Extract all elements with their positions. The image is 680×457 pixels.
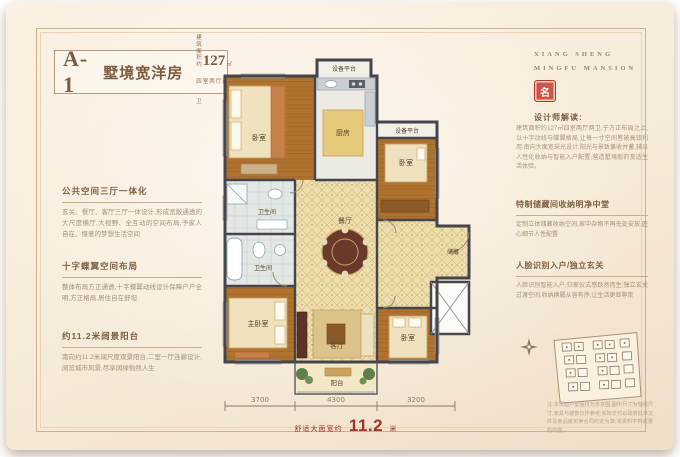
brand-line-1: XIANG SHENG — [534, 48, 636, 62]
feature-body: 南向约11.2米阔尺度观景阳台,二室一厅连廊设计,阅览城市风景,尽享阔绰怡然人生 — [62, 352, 202, 374]
feature-block-storage: 特制储藏间收纳明净中堂 定制立体储藏收纳空间,家中杂物不再无处安放,匠心细节人性… — [516, 199, 648, 240]
floorplan-card: A-1 墅境宽洋房 建筑面积约 127 ㎡ 四室两厅两卫 公共空间三厅一体化 玄… — [6, 2, 674, 450]
feature-heading: 特制储藏间收纳明净中堂 — [516, 199, 648, 216]
room-label-master: 主卧室 — [248, 319, 269, 328]
room-label-equipment-top: 设备平台 — [332, 65, 356, 73]
feature-block-cross-layout: 十字蝶翼空间布局 整体布局方正通透,十字蝶翼动线设计保障户户全明,方正格局,居住… — [62, 260, 202, 304]
unit-name: 墅境宽洋房 — [96, 62, 190, 83]
room-label-bath-1: 卫生间 — [258, 208, 276, 216]
room-label-storage: 储藏 — [447, 248, 459, 256]
room-label-equipment-right: 设备平台 — [395, 127, 419, 135]
width-caption-value: 11.2 — [347, 416, 385, 435]
feature-heading: 人脸识别入户/独立玄关 — [516, 260, 648, 277]
designer-notes-heading: 设计师解读: — [534, 112, 583, 123]
brand-seal-icon: 名 — [534, 80, 556, 102]
brand-line-2: MINGFU MANSION — [534, 62, 636, 76]
feature-block-balcony: 约11.2米阔景阳台 南向约11.2米阔尺度观景阳台,二室一厅连廊设计,阅览城市… — [62, 330, 202, 374]
room-label-bedroom-bottomright: 卧室 — [401, 333, 415, 342]
floor-plan: 设备平台 卧室 厨房 设备平台 卧室 卫生间 卫生间 餐厅 客厅 主卧室 卧室 … — [217, 30, 475, 414]
feature-block-entry: 人脸识别入户/独立玄关 人脸识别智能入户,归家仪式感跃然而生;独立玄关过渡空间,… — [516, 260, 648, 301]
designer-notes-body: 建筑面积约127㎡四室两厅两卫,于方正布局之上,以十字动线与蝶翼格局,让每一寸空… — [516, 125, 648, 173]
feature-heading: 公共空间三厅一体化 — [62, 185, 202, 203]
feature-body: 玄关、餐厅、客厅三厅一体设计,形成宽敞通透的大尺度横厅,大视野、全互动的空间布局… — [62, 207, 202, 240]
feature-block-public-space: 公共空间三厅一体化 玄关、餐厅、客厅三厅一体设计,形成宽敞通透的大尺度横厅,大视… — [62, 185, 202, 240]
feature-body: 人脸识别智能入户,归家仪式感跃然而生;独立玄关过渡空间,收纳换履从容有序,让生活… — [516, 281, 648, 301]
bedroom-right-furniture — [381, 144, 429, 212]
dimension-value-left: 3700 — [251, 396, 269, 404]
floor-plan-drawing: 设备平台 卧室 厨房 设备平台 卧室 卫生间 卫生间 餐厅 客厅 主卧室 卧室 … — [217, 30, 475, 414]
width-caption-prefix: 舒适大面宽约 — [294, 426, 342, 433]
room-label-kitchen: 厨房 — [336, 128, 350, 137]
feature-heading: 十字蝶翼空间布局 — [62, 260, 202, 278]
room-label-bedroom-right: 卧室 — [399, 158, 413, 167]
feature-heading: 约11.2米阔景阳台 — [62, 330, 202, 348]
room-label-dining: 餐厅 — [338, 216, 352, 225]
room-hallway — [377, 220, 437, 308]
disclaimer-text: 注:本页面户型图仅为示意图,图中尺寸为轴线尺寸,家具与装饰仅作参考;实际交付以政… — [547, 401, 653, 435]
feature-body: 定制立体储藏收纳空间,家中杂物不再无处安放,匠心细节人性配置 — [516, 220, 648, 240]
room-label-living: 客厅 — [330, 341, 344, 350]
brand-wordmark: XIANG SHENG MINGFU MANSION — [534, 48, 636, 75]
dimension-value-right: 3200 — [407, 396, 425, 404]
feature-body: 整体布局方正通透,十字蝶翼动线设计保障户户全明,方正格局,居住自在舒坦 — [62, 282, 202, 304]
room-label-bath-2: 卫生间 — [254, 264, 272, 272]
seal-glyph: 名 — [540, 84, 550, 99]
dimension-line: 3700 4300 3200 — [225, 396, 455, 411]
unit-title-box: A-1 墅境宽洋房 建筑面积约 127 ㎡ 四室两厅两卫 — [54, 50, 228, 94]
room-label-bedroom-topleft: 卧室 — [252, 133, 266, 142]
unit-code: A-1 — [55, 46, 96, 98]
site-plan-minimap — [549, 330, 643, 405]
width-caption-unit: 米 — [390, 426, 398, 433]
compass-icon — [520, 338, 538, 356]
dimension-value-center: 4300 — [327, 396, 345, 404]
room-label-balcony: 阳台 — [331, 378, 344, 387]
width-caption: 舒适大面宽约 11.2 米 — [217, 416, 475, 436]
